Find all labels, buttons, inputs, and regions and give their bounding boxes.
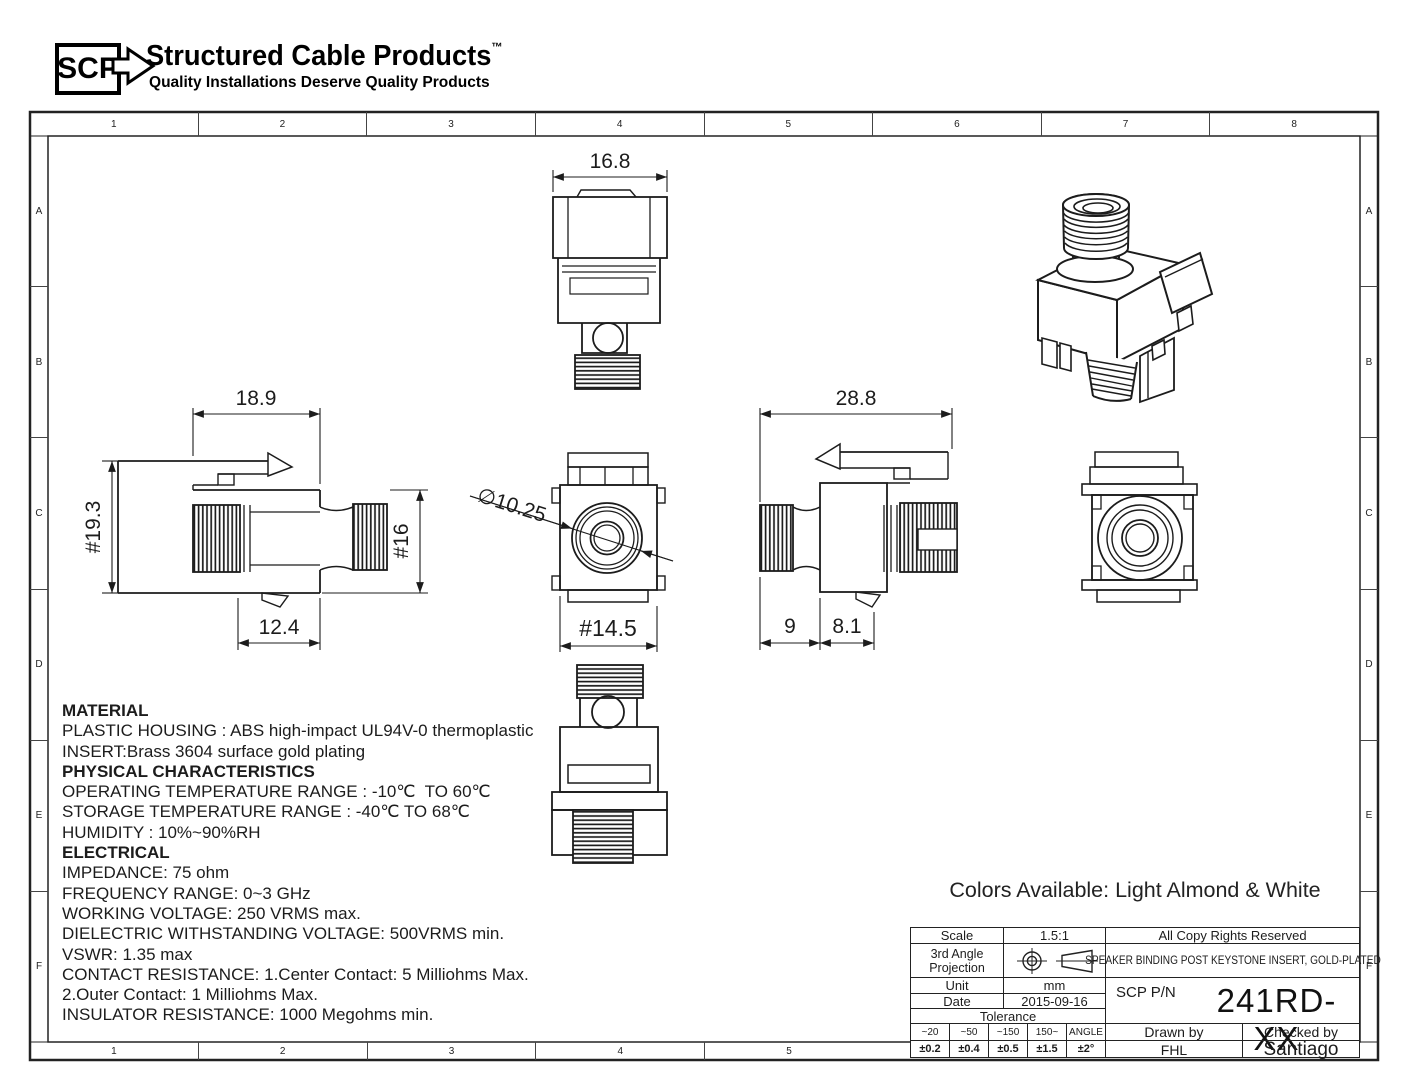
title-block: Scale 1.5:1 All Copy Rights Reserved 3rd… [910,927,1360,1058]
note-line: FREQUENCY RANGE: 0~3 GHz [62,884,602,904]
ruler-number: 8 [1209,112,1378,136]
note-line: DIELECTRIC WITHSTANDING VOLTAGE: 500VRMS… [62,924,602,944]
colors-available-note: Colors Available: Light Almond & White [905,878,1365,903]
ruler-letter: D [1360,589,1378,740]
dimension-label: 28.8 [836,387,877,410]
dimension-label: 16.8 [590,150,631,173]
ruler-number: 4 [535,1042,704,1060]
note-line: INSULATOR RESISTANCE: 1000 Megohms min. [62,1005,602,1025]
tolerance-header-cell: 150~ [1028,1024,1067,1041]
drawing-sheet: SCP Structured Cable Products™ Quality I… [0,0,1408,1088]
ruler-number: 5 [704,1042,873,1060]
ruler-letter: D [30,589,48,740]
note-line: HUMIDITY : 10%~90%RH [62,823,602,843]
side-view-right: 28.8 9 8.1 [760,387,957,650]
ruler-number: 7 [1041,112,1210,136]
scale-label: Scale [911,928,1004,944]
note-line: OPERATING TEMPERATURE RANGE : -10℃ TO 60… [62,782,602,802]
ruler-letter: A [1360,136,1378,286]
ruler-letter: B [30,286,48,437]
scale-value: 1.5:1 [1004,928,1106,944]
note-line: INSERT:Brass 3604 surface gold plating [62,742,602,762]
ruler-number: 2 [198,1042,367,1060]
tolerance-value-cell: ±0.4 [950,1041,989,1058]
tolerance-value-cell: ±2° [1067,1041,1106,1058]
spec-notes: MATERIALPLASTIC HOUSING : ABS high-impac… [62,701,602,1026]
tolerance-value-cell: ±0.2 [911,1041,950,1058]
note-line: VSWR: 1.35 max [62,945,602,965]
ruler-number: 1 [30,1042,198,1060]
note-line: 2.Outer Contact: 1 Milliohms Max. [62,985,602,1005]
pn-label: SCP P/N [1116,984,1176,1001]
part-number-cell: SCP P/N 241RD-XX [1106,978,1359,1024]
note-line: PLASTIC HOUSING : ABS high-impact UL94V-… [62,721,602,741]
ruler-bottom: 12345 [30,1042,873,1060]
tolerance-header-cell: ~50 [950,1024,989,1041]
date-label: Date [911,994,1004,1009]
front-face-view: ∅10.25 #14.5 [470,453,673,652]
note-line: MATERIAL [62,701,602,721]
rear-face-view [1082,452,1197,602]
isometric-view [1038,194,1212,402]
ruler-right: ABCDEF [1360,136,1378,1042]
dimension-label: ∅10.25 [474,484,548,527]
unit-label: Unit [911,978,1004,994]
projection-label: 3rd Angle Projection [911,944,1004,978]
dimension-label: #16 [390,523,413,558]
product-title-cell: SPEAKER BINDING POST KEYSTONE INSERT, GO… [1106,944,1359,978]
tolerance-headers: ~20~50~150150~ANGLE [911,1024,1106,1041]
note-line: CONTACT RESISTANCE: 1.Center Contact: 5 … [62,965,602,985]
ruler-letter: A [30,136,48,286]
drawn-by-value: FHL [1106,1041,1243,1058]
front-view: 16.8 [553,150,667,389]
dimension-label: 18.9 [236,387,277,410]
dimension-label: 12.4 [259,616,300,639]
ruler-left: ABCDEF [30,136,48,1042]
note-line: STORAGE TEMPERATURE RANGE : -40℃ TO 68℃ [62,802,602,822]
ruler-letter: F [30,891,48,1042]
ruler-number: 3 [367,1042,536,1060]
copyright-note: All Copy Rights Reserved [1106,928,1359,944]
tolerance-label: Tolerance [911,1009,1106,1024]
ruler-letter: C [30,437,48,588]
ruler-number: 5 [704,112,873,136]
dimension-label: #19.3 [82,501,105,554]
tolerance-value-cell: ±1.5 [1028,1041,1067,1058]
ruler-number: 2 [198,112,367,136]
date-value: 2015-09-16 [1004,994,1106,1009]
ruler-number: 1 [30,112,198,136]
unit-value: mm [1004,978,1106,994]
note-line: ELECTRICAL [62,843,602,863]
ruler-number: 4 [535,112,704,136]
note-line: WORKING VOLTAGE: 250 VRMS max. [62,904,602,924]
tolerance-values: ±0.2±0.4±0.5±1.5±2° [911,1041,1106,1058]
dimension-label: 8.1 [832,615,861,638]
dimension-16-8 [553,170,667,192]
tolerance-header-cell: ANGLE [1067,1024,1106,1041]
checked-by-value: Santiago [1243,1041,1359,1058]
dimension-label: 9 [784,615,796,638]
note-line: IMPEDANCE: 75 ohm [62,863,602,883]
ruler-letter: B [1360,286,1378,437]
ruler-letter: E [1360,740,1378,891]
dimension-label: #14.5 [579,615,637,641]
tolerance-header-cell: ~150 [989,1024,1028,1041]
ruler-number: 3 [366,112,535,136]
ruler-letter: C [1360,437,1378,588]
ruler-top: 12345678 [30,112,1378,136]
tolerance-header-cell: ~20 [911,1024,950,1041]
side-view-left: 18.9 #19.3 #16 12.4 [82,387,428,650]
product-title: SPEAKER BINDING POST KEYSTONE INSERT, GO… [1085,955,1381,967]
note-line: PHYSICAL CHARACTERISTICS [62,762,602,782]
tolerance-value-cell: ±0.5 [989,1041,1028,1058]
ruler-number: 6 [872,112,1041,136]
ruler-letter: E [30,740,48,891]
drawn-by-label: Drawn by [1106,1024,1243,1041]
